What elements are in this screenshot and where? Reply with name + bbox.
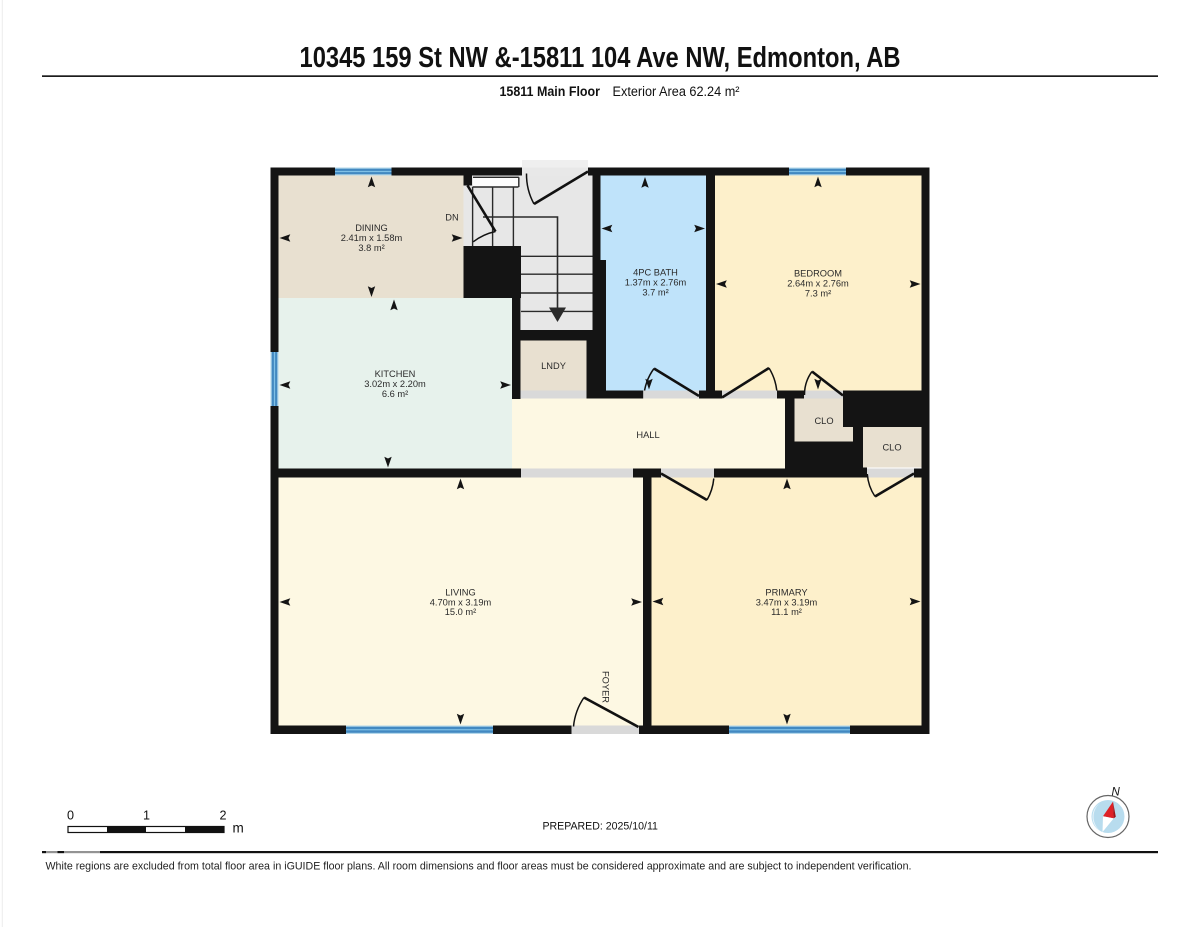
- svg-text:2: 2: [219, 809, 226, 823]
- svg-text:3.8 m²: 3.8 m²: [358, 243, 384, 253]
- svg-text:1.37m x 2.76m: 1.37m x 2.76m: [625, 277, 687, 287]
- svg-text:KITCHEN: KITCHEN: [375, 369, 416, 379]
- svg-text:2.41m x 1.58m: 2.41m x 1.58m: [341, 233, 403, 243]
- svg-text:1: 1: [143, 809, 150, 823]
- svg-text:11.1 m²: 11.1 m²: [771, 607, 802, 617]
- svg-text:CLO: CLO: [814, 416, 833, 426]
- svg-text:LIVING: LIVING: [445, 587, 475, 597]
- svg-text:6.6 m²: 6.6 m²: [382, 389, 408, 399]
- svg-text:DN: DN: [445, 213, 458, 223]
- svg-text:CLO: CLO: [882, 442, 901, 452]
- svg-text:FOYER: FOYER: [601, 671, 611, 703]
- svg-text:N: N: [1112, 786, 1121, 798]
- svg-text:10345 159 St NW &-15811 104 Av: 10345 159 St NW &-15811 104 Ave NW, Edmo…: [300, 42, 901, 74]
- svg-text:15.0 m²: 15.0 m²: [445, 607, 477, 617]
- svg-text:DINING: DINING: [355, 223, 388, 233]
- svg-text:3.47m x 3.19m: 3.47m x 3.19m: [756, 597, 818, 607]
- svg-text:3.7 m²: 3.7 m²: [642, 287, 668, 297]
- svg-text:4.70m x 3.19m: 4.70m x 3.19m: [430, 597, 492, 607]
- svg-text:7.3 m²: 7.3 m²: [805, 288, 831, 298]
- svg-text:BEDROOM: BEDROOM: [794, 268, 842, 278]
- svg-text:PREPARED: 2025/10/11: PREPARED: 2025/10/11: [542, 821, 658, 833]
- svg-text:2.64m x 2.76m: 2.64m x 2.76m: [787, 278, 849, 288]
- svg-text:White regions are excluded fro: White regions are excluded from total fl…: [46, 861, 912, 873]
- svg-text:PRIMARY: PRIMARY: [765, 587, 807, 597]
- svg-text:m: m: [233, 821, 244, 836]
- svg-text:15811 Main Floor: 15811 Main Floor: [500, 84, 601, 99]
- svg-text:0: 0: [67, 809, 74, 823]
- svg-text:HALL: HALL: [636, 430, 659, 440]
- svg-text:3.02m x 2.20m: 3.02m x 2.20m: [364, 379, 426, 389]
- svg-text:LNDY: LNDY: [541, 361, 566, 371]
- svg-text:Exterior Area 62.24 m²: Exterior Area 62.24 m²: [613, 84, 740, 99]
- svg-text:4PC BATH: 4PC BATH: [633, 267, 678, 277]
